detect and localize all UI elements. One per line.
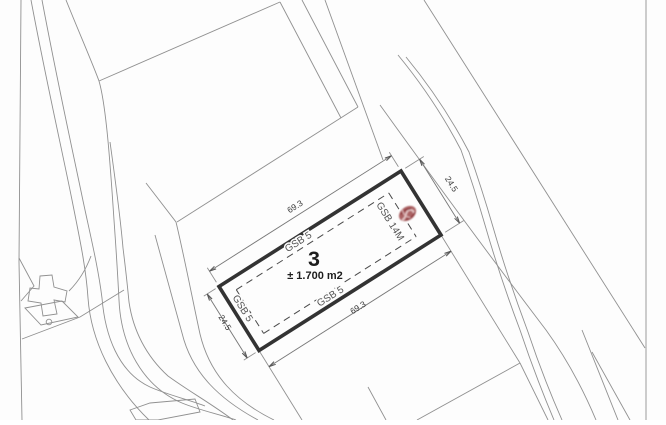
svg-text:3: 3: [308, 247, 320, 271]
svg-text:± 1.700 m2: ± 1.700 m2: [287, 270, 343, 282]
